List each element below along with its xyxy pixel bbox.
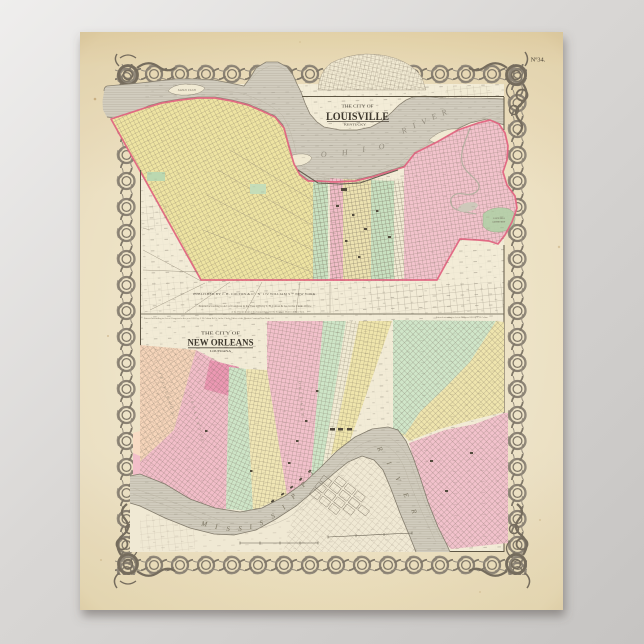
svg-text:Nº34.: Nº34. <box>531 57 546 64</box>
